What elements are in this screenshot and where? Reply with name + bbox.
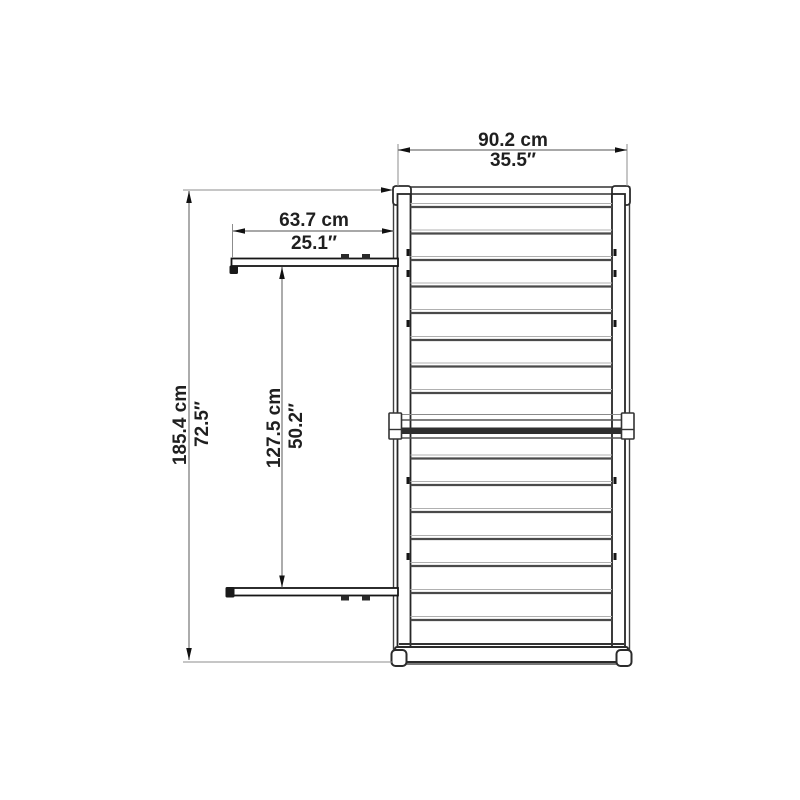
arrow-left-icon	[398, 147, 410, 153]
arrow-up-icon	[279, 267, 285, 279]
lower-door-latch	[362, 596, 370, 601]
upper-door-latch	[362, 254, 370, 259]
fastener-mark	[614, 553, 617, 560]
arrow-right-icon	[381, 187, 393, 193]
arrow-down-icon	[186, 648, 192, 660]
total-width-inch-label: 35.5″	[490, 150, 536, 171]
total-height-cm-label: 185.4 cm	[170, 385, 191, 465]
upper-door-latch	[341, 254, 349, 259]
fastener-mark	[614, 477, 617, 484]
door-depth-cm-label: 63.7 cm	[279, 210, 349, 231]
top-cap-bar	[394, 187, 630, 194]
total-height-inch-label: 72.5″	[192, 401, 213, 447]
lower-door-handle	[226, 587, 235, 598]
hinge-tab	[389, 413, 402, 439]
base-left-foot	[392, 650, 407, 666]
base-right-foot	[617, 650, 632, 666]
dim-door-depth: 63.7 cm 25.1″	[233, 210, 395, 258]
upper-door-handle	[230, 266, 239, 275]
hinge-tab	[622, 413, 635, 439]
lower-door-open	[226, 587, 399, 601]
arrow-left-icon	[233, 228, 245, 234]
lower-door-latch	[341, 596, 349, 601]
total-width-cm-label: 90.2 cm	[478, 130, 548, 151]
arrow-up-icon	[186, 191, 192, 203]
dim-total-width: 90.2 cm 35.5″	[398, 130, 627, 186]
doors-span-inch-label: 50.2″	[286, 403, 307, 449]
fastener-mark	[407, 320, 410, 327]
divider-right-hinge	[622, 413, 635, 439]
upper-door-open	[230, 254, 399, 274]
dim-doors-span: 127.5 cm 50.2″	[264, 267, 307, 588]
fastener-mark	[614, 270, 617, 277]
upper-door-panel	[232, 259, 399, 267]
diagram-canvas: 90.2 cm 35.5″ 63.7 cm 25.1″ 185.4 cm 72.…	[0, 0, 800, 800]
fastener-mark	[614, 320, 617, 327]
divider-left-hinge	[389, 413, 402, 439]
lower-door-panel	[228, 588, 399, 596]
shed-dimension-diagram: 90.2 cm 35.5″ 63.7 cm 25.1″ 185.4 cm 72.…	[0, 0, 800, 800]
fastener-mark	[407, 249, 410, 256]
door-depth-inch-label: 25.1″	[291, 233, 337, 254]
fastener-mark	[407, 553, 410, 560]
fastener-mark	[614, 249, 617, 256]
base-bar	[395, 647, 628, 662]
shed-structure	[389, 186, 634, 666]
arrow-right-icon	[382, 228, 394, 234]
fastener-mark	[407, 270, 410, 277]
divider-dark-rail	[399, 428, 624, 435]
shed-base	[392, 644, 632, 666]
doors-span-cm-label: 127.5 cm	[264, 388, 285, 468]
arrow-down-icon	[279, 576, 285, 588]
fastener-mark	[407, 477, 410, 484]
arrow-right-icon	[615, 147, 627, 153]
